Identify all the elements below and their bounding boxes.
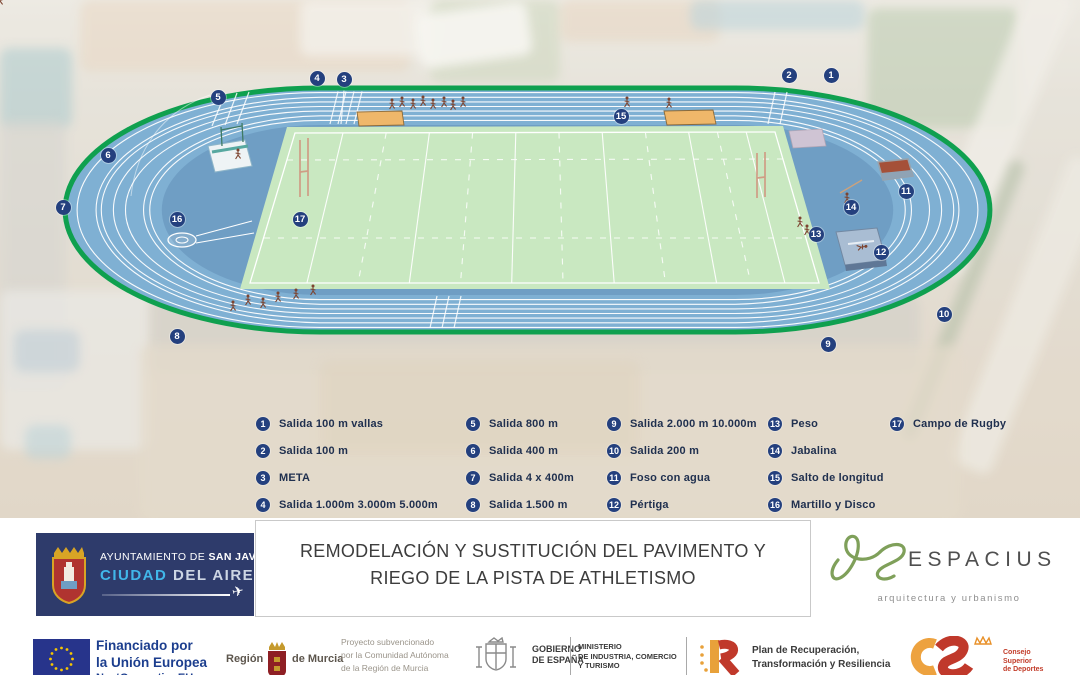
municipality-motto: CIUDAD DEL AIRE <box>100 567 254 584</box>
legend-label: Salida 4 x 400m <box>489 472 574 484</box>
legend-label: Salto de longitud <box>791 472 884 484</box>
legend-item-8: 8Salida 1.500 m <box>466 498 568 512</box>
legend-item-5: 5Salida 800 m <box>466 417 558 431</box>
legend-label: Jabalina <box>791 445 837 457</box>
legend-item-13: 13Peso <box>768 417 818 431</box>
legend-number-badge: 2 <box>256 444 270 458</box>
legend-item-17: 17Campo de Rugby <box>890 417 1006 431</box>
murcia-label-right: de Murcia <box>292 653 343 665</box>
shot-put-area <box>789 129 826 148</box>
legend-number-badge: 12 <box>607 498 621 512</box>
track-marker-17: 17 <box>293 212 308 227</box>
legend-item-3: 3META <box>256 471 310 485</box>
legend-item-11: 11Foso con agua <box>607 471 710 485</box>
legend-number-badge: 5 <box>466 417 480 431</box>
legend-item-6: 6Salida 400 m <box>466 444 558 458</box>
spain-coat-of-arms-icon <box>470 637 522 675</box>
prtr-logo-icon <box>698 637 748 675</box>
legend-item-15: 15Salto de longitud <box>768 471 884 485</box>
page: 1234567891011121314151617 1Salida 100 m … <box>0 0 1080 675</box>
legend-item-7: 7Salida 4 x 400m <box>466 471 574 485</box>
sand-pit-left <box>357 111 404 126</box>
legend-number-badge: 8 <box>466 498 480 512</box>
legend-item-1: 1Salida 100 m vallas <box>256 417 383 431</box>
legend-number-badge: 7 <box>466 471 480 485</box>
espacius-name: ESPACIUS <box>908 548 1057 572</box>
legend-label: Martillo y Disco <box>791 499 876 511</box>
legend-item-9: 9Salida 2.000 m 10.000m <box>607 417 757 431</box>
legend-number-badge: 1 <box>256 417 270 431</box>
track-marker-15: 15 <box>614 109 629 124</box>
eu-funding-text: Financiado porla Unión Europea <box>96 637 207 671</box>
legend-label: Salida 1.500 m <box>489 499 568 511</box>
legend-label: Campo de Rugby <box>913 418 1006 430</box>
legend-label: Salida 200 m <box>630 445 699 457</box>
legend-label: Salida 100 m vallas <box>279 418 383 430</box>
gobierno-text: GOBIERNODE ESPAÑA <box>532 644 584 666</box>
legend-number-badge: 6 <box>466 444 480 458</box>
legend-label: Salida 1.000m 3.000m 5.000m <box>279 499 438 511</box>
high-jump-mat <box>208 140 252 172</box>
san-javier-logo: AYUNTAMIENTO DE SAN JAVIER CIUDAD DEL AI… <box>36 533 254 616</box>
legend-number-badge: 17 <box>890 417 904 431</box>
legend-number-badge: 9 <box>607 417 621 431</box>
legend-label: Salida 800 m <box>489 418 558 430</box>
legend-label: Salida 2.000 m 10.000m <box>630 418 757 430</box>
track-marker-7: 7 <box>56 200 71 215</box>
legend-label: Peso <box>791 418 818 430</box>
legend-item-14: 14Jabalina <box>768 444 837 458</box>
espacius-es-icon <box>824 526 916 588</box>
espacius-logo: ESPACIUS arquitectura y urbanismo <box>812 520 1080 617</box>
track-marker-9: 9 <box>821 337 836 352</box>
sand-pit-right <box>664 110 716 125</box>
legend-number-badge: 3 <box>256 471 270 485</box>
divider <box>570 637 571 675</box>
legend-item-10: 10Salida 200 m <box>607 444 699 458</box>
rugby-field <box>240 126 830 289</box>
legend-number-badge: 15 <box>768 471 782 485</box>
legend-item-12: 12Pértiga <box>607 498 669 512</box>
legend-item-4: 4Salida 1.000m 3.000m 5.000m <box>256 498 438 512</box>
track-marker-16: 16 <box>170 212 185 227</box>
legend-number-badge: 16 <box>768 498 782 512</box>
prtr-text: Plan de Recuperación,Transformación y Re… <box>752 644 890 671</box>
track-marker-3: 3 <box>337 72 352 87</box>
airplane-icon: ✈ <box>230 582 245 601</box>
murcia-label-left: Región <box>226 653 263 665</box>
track-marker-2: 2 <box>782 68 797 83</box>
footer: AYUNTAMIENTO DE SAN JAVIER CIUDAD DEL AI… <box>0 518 1080 675</box>
project-title-line2: RIEGO DE LA PISTA DE ATHLETISMO <box>256 565 810 592</box>
track-illustration <box>0 0 1080 518</box>
track-marker-8: 8 <box>170 329 185 344</box>
swoosh-line <box>102 594 230 596</box>
aerial-scene: 1234567891011121314151617 1Salida 100 m … <box>0 0 1080 518</box>
track-marker-14: 14 <box>844 200 859 215</box>
legend-label: Foso con agua <box>630 472 710 484</box>
legend-number-badge: 10 <box>607 444 621 458</box>
murcia-crest-icon <box>264 639 290 675</box>
subsidy-note: Proyecto subvencionadopor la Comunidad A… <box>341 636 449 675</box>
legend-label: Salida 100 m <box>279 445 348 457</box>
track-marker-5: 5 <box>211 90 226 105</box>
legend-number-badge: 4 <box>256 498 270 512</box>
track-marker-12: 12 <box>874 245 889 260</box>
legend-label: META <box>279 472 310 484</box>
espacius-tagline: arquitectura y urbanismo <box>864 593 1034 604</box>
track-marker-6: 6 <box>101 148 116 163</box>
track-marker-13: 13 <box>809 227 824 242</box>
divider <box>686 637 687 675</box>
legend-item-2: 2Salida 100 m <box>256 444 348 458</box>
project-title-line1: REMODELACIÓN Y SUSTITUCIÓN DEL PAVIMENTO… <box>256 538 810 565</box>
legend-number-badge: 14 <box>768 444 782 458</box>
csd-text: ConsejoSuperiorde Deportes <box>1003 649 1043 675</box>
eu-flag-icon <box>33 639 90 675</box>
legend-label: Salida 400 m <box>489 445 558 457</box>
municipality-name: AYUNTAMIENTO DE SAN JAVIER <box>100 551 275 563</box>
san-javier-crest-icon <box>48 545 90 605</box>
water-jump <box>878 159 913 180</box>
project-title-box: REMODELACIÓN Y SUSTITUCIÓN DEL PAVIMENTO… <box>255 520 811 617</box>
legend-number-badge: 13 <box>768 417 782 431</box>
track-marker-10: 10 <box>937 307 952 322</box>
legend-label: Pértiga <box>630 499 669 511</box>
ministerio-text: MINISTERIODE INDUSTRIA, COMERCIOY TURISM… <box>578 642 677 671</box>
legend-number-badge: 11 <box>607 471 621 485</box>
legend-item-16: 16Martillo y Disco <box>768 498 876 512</box>
csd-logo-icon <box>905 636 997 675</box>
track-marker-4: 4 <box>310 71 325 86</box>
track-marker-11: 11 <box>899 184 914 199</box>
track-marker-1: 1 <box>824 68 839 83</box>
